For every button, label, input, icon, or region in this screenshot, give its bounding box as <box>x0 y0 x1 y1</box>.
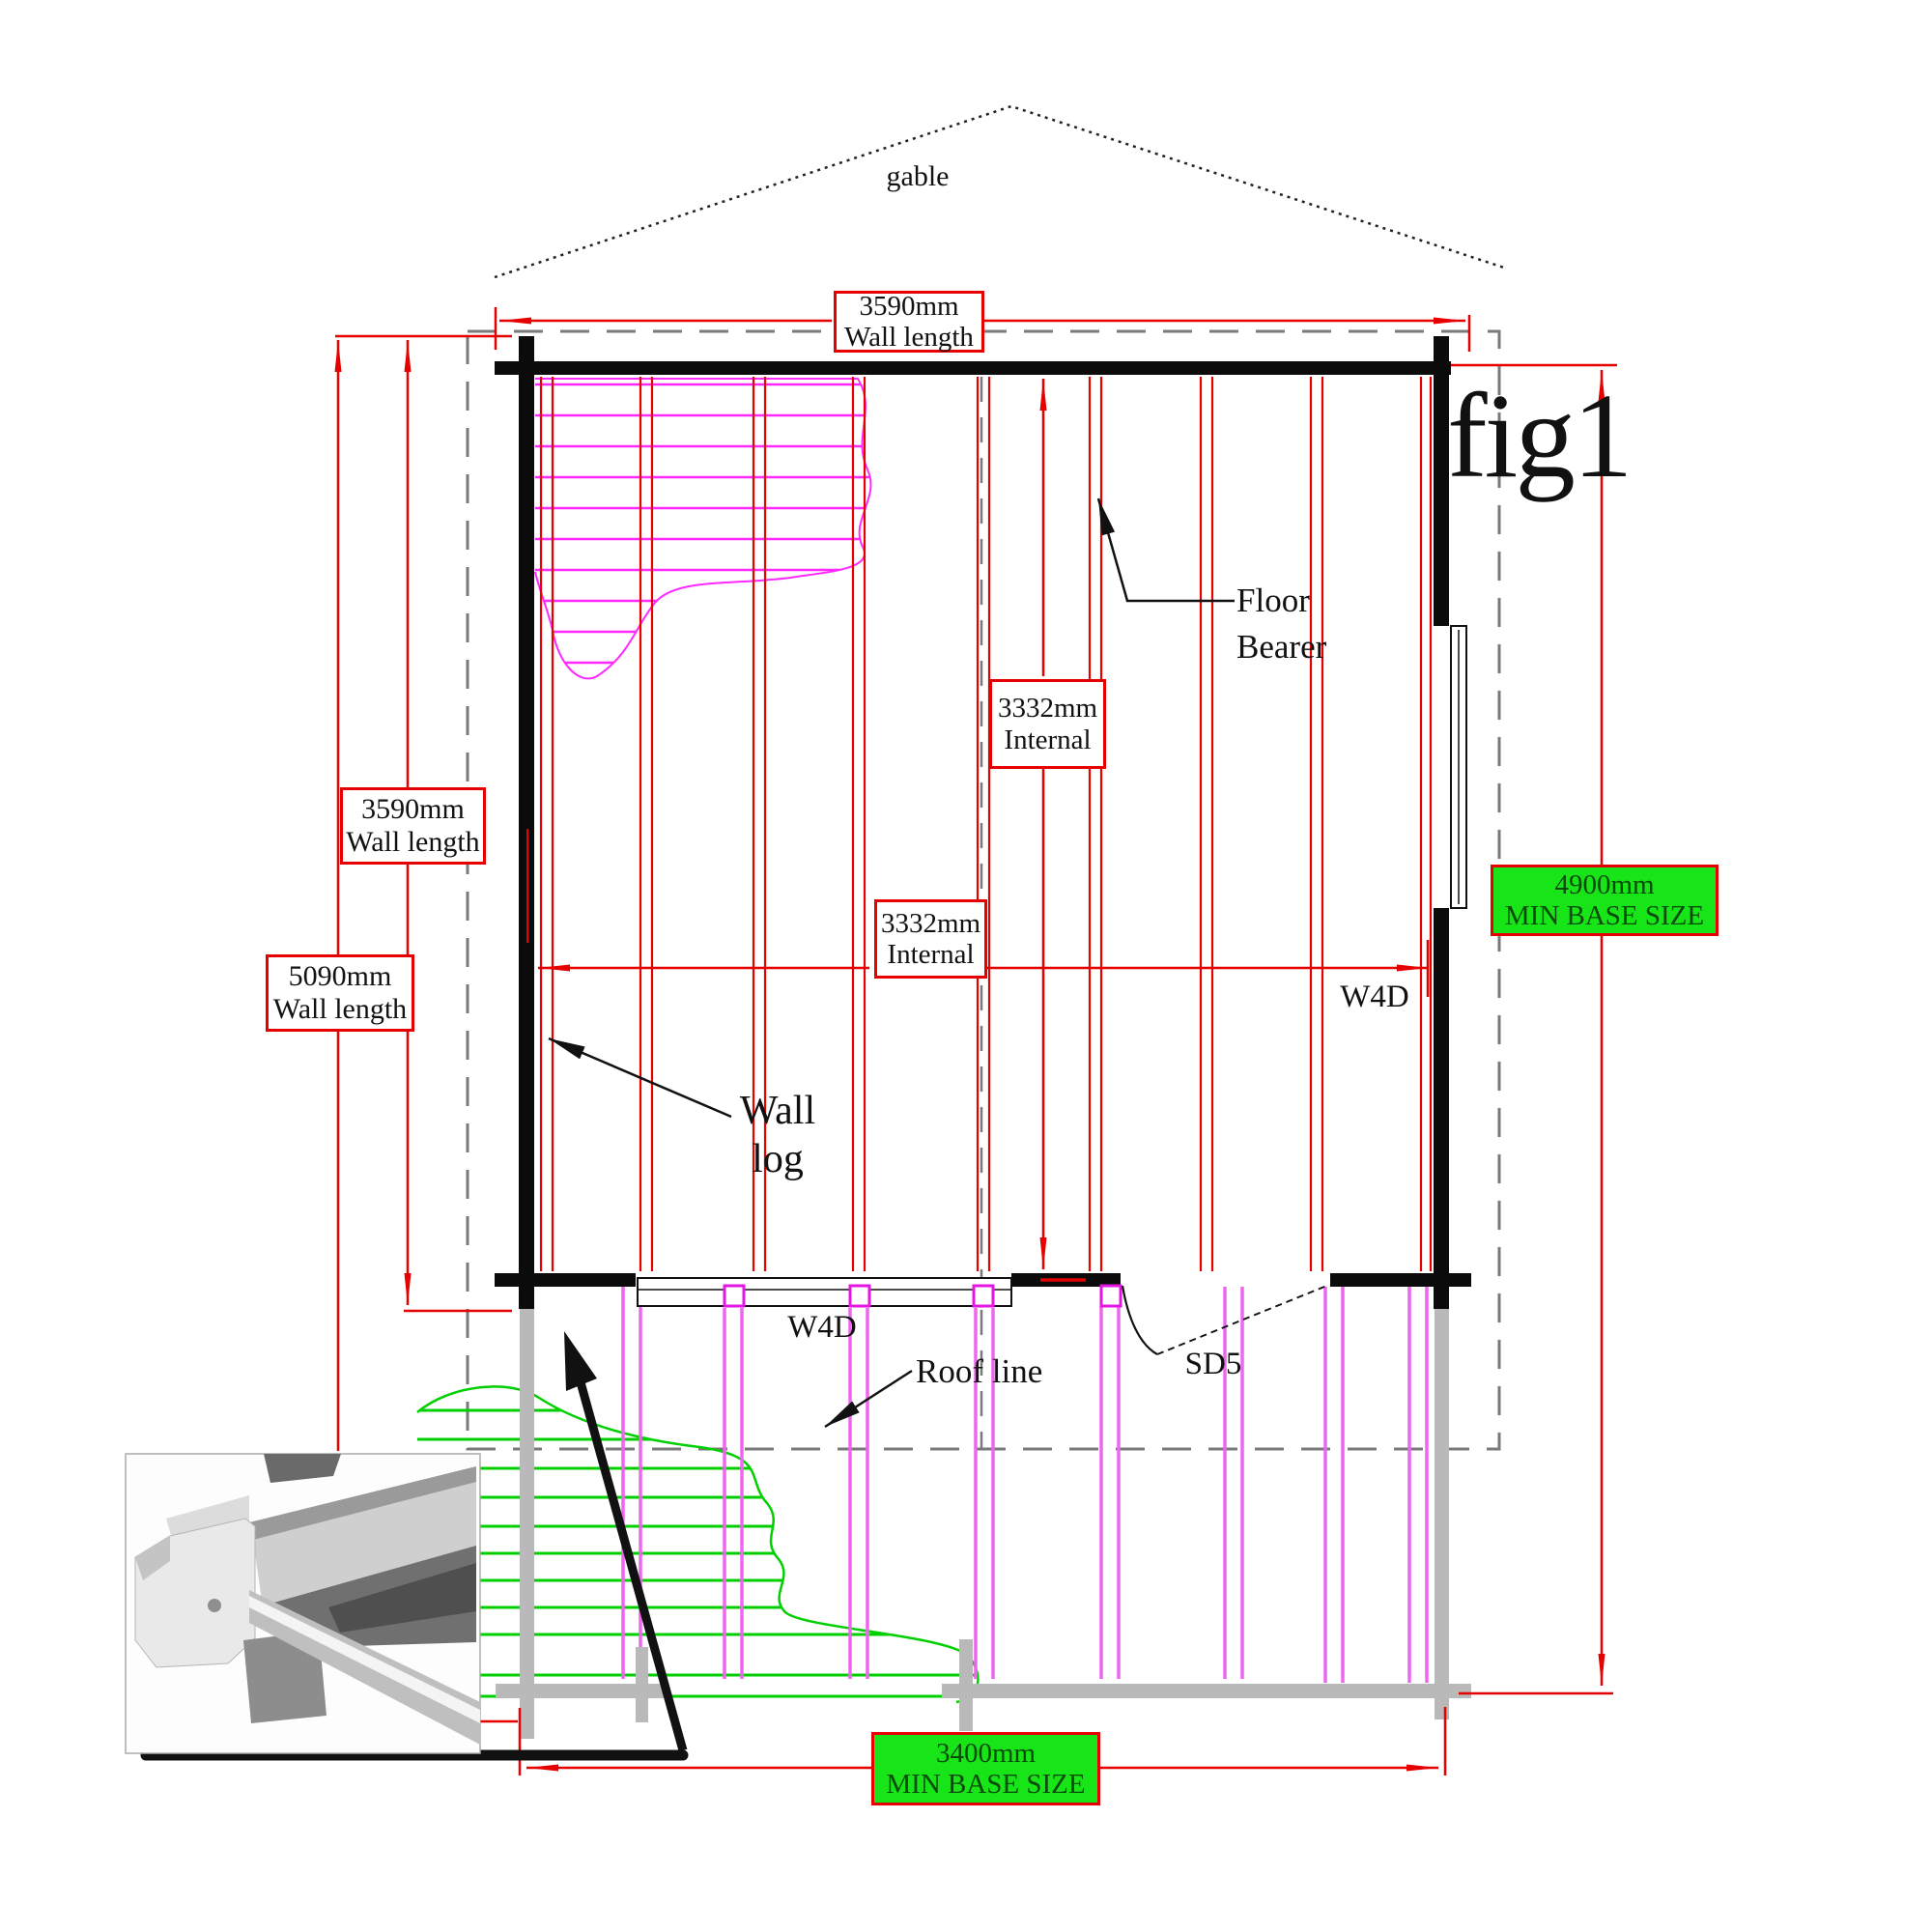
gable-label: gable <box>850 160 985 193</box>
dim-value: 3332mm <box>998 693 1097 724</box>
wall-log-label-line2: log <box>720 1136 836 1184</box>
wall-log-label: Wall log <box>720 1088 836 1183</box>
dim-label: Wall length <box>346 826 479 859</box>
dim-label: Wall length <box>844 322 974 353</box>
dim-box-internal-upper: 3332mm Internal <box>989 679 1106 769</box>
wall-log-label-line1: Wall <box>720 1088 836 1136</box>
wall-left <box>519 336 534 1309</box>
dim-label: Wall length <box>273 993 407 1026</box>
floor-bearer-label-line2: Bearer <box>1236 624 1391 670</box>
dim-right-4900 <box>1451 365 1617 1693</box>
pink-hatch-area <box>533 379 884 678</box>
green-hatch-area <box>413 1386 978 1702</box>
dim-label: MIN BASE SIZE <box>1505 900 1704 931</box>
dim-value: 3400mm <box>936 1738 1036 1769</box>
photo-inset-log-joint <box>126 1454 480 1753</box>
figure-label: fig1 <box>1447 377 1660 497</box>
door-label: SD5 <box>1175 1347 1252 1382</box>
dim-box-min-base-right: 4900mm MIN BASE SIZE <box>1491 865 1719 936</box>
dim-value: 3590mm <box>859 291 958 322</box>
gable-outline <box>495 106 1507 277</box>
dim-box-min-base-bottom: 3400mm MIN BASE SIZE <box>871 1732 1100 1805</box>
window-right-w4d <box>1451 626 1466 908</box>
dim-box-top-wall-length: 3590mm Wall length <box>834 291 984 353</box>
dim-box-left-wall-length-3590: 3590mm Wall length <box>340 787 486 865</box>
dim-internal-vertical-3332 <box>1040 379 1086 1280</box>
wall-bottom-right <box>1330 1273 1471 1287</box>
wall-bottom-left <box>495 1273 636 1287</box>
window-right-label: W4D <box>1331 980 1418 1015</box>
left-wall-extension <box>520 1309 534 1739</box>
purlin-lines-magenta <box>623 1287 1427 1683</box>
floor-bearer-lines <box>541 377 1431 1271</box>
dim-label: MIN BASE SIZE <box>886 1769 1085 1800</box>
dim-box-internal-middle: 3332mm Internal <box>874 899 987 979</box>
wall-right-lower <box>1434 908 1449 1309</box>
right-wall-extension <box>1435 1309 1449 1719</box>
floor-bearer-label-line1: Floor <box>1236 578 1391 624</box>
dim-box-left-wall-length-5090: 5090mm Wall length <box>266 954 414 1032</box>
dim-label: Internal <box>1004 724 1091 755</box>
roof-line-label: Roof line <box>916 1352 1080 1391</box>
dim-value: 3590mm <box>361 793 465 826</box>
wall-top <box>495 361 1451 375</box>
dim-value: 4900mm <box>1554 869 1654 900</box>
dim-value: 5090mm <box>289 960 392 993</box>
window-bottom-label: W4D <box>779 1310 866 1346</box>
dim-value: 3332mm <box>881 908 980 939</box>
floor-bearer-label: Floor Bearer <box>1236 578 1391 671</box>
dim-label: Internal <box>887 939 974 970</box>
floor-bearer-leader <box>1098 498 1235 601</box>
floor-plan-page: gable fig1 3590mm Wall length 3590mm Wal… <box>0 0 1932 1932</box>
